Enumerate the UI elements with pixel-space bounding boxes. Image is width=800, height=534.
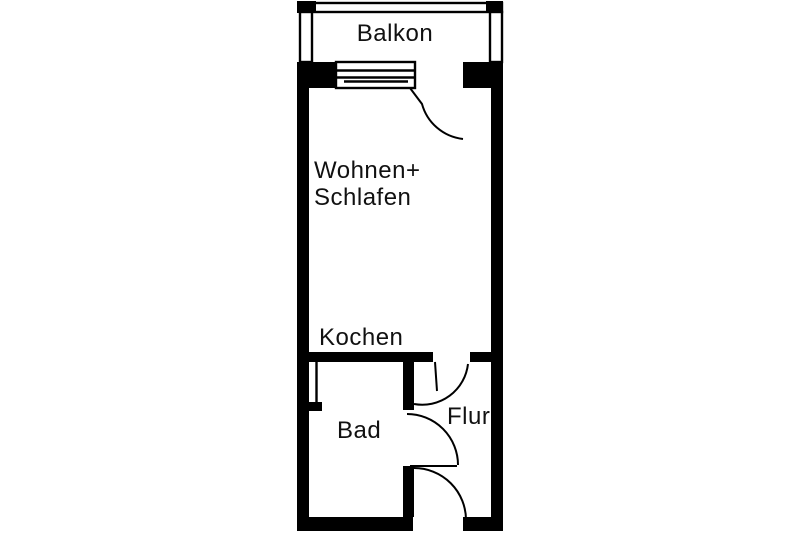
doors xyxy=(407,88,468,520)
window-frame xyxy=(336,62,415,88)
balcony-post-right xyxy=(486,1,503,13)
interior-wall-kitchen xyxy=(309,352,433,362)
balcony-railing-left xyxy=(300,12,312,62)
window xyxy=(336,62,415,88)
balcony-railing-right xyxy=(490,12,502,62)
room-label-balcony: Balkon xyxy=(357,20,433,47)
room-label-living-line1: Wohnen+ xyxy=(314,157,420,184)
room-label-bathroom: Bad xyxy=(337,417,381,444)
room-label-hallway: Flur xyxy=(447,403,490,430)
interior-wall-kitchen-stub xyxy=(470,352,491,362)
top-wall-right-segment xyxy=(463,62,503,88)
bottom-wall-left-segment xyxy=(297,517,413,531)
room-label-kitchen: Kochen xyxy=(319,324,403,351)
bath-wall-lower xyxy=(403,466,414,517)
bath-wall-upper xyxy=(403,362,414,410)
balcony-door-swing xyxy=(410,88,463,139)
floorplan: Balkon Wohnen+ Schlafen Kochen Bad Flur xyxy=(0,0,800,534)
entrance-door-swing xyxy=(414,468,466,520)
balcony-railing-top xyxy=(300,3,502,12)
room-label-living-line2: Schlafen xyxy=(314,184,411,211)
duct-block xyxy=(309,402,322,411)
floorplan-drawing: Balkon Wohnen+ Schlafen Kochen Bad Flur xyxy=(0,0,800,534)
hallway-door-swing xyxy=(414,362,468,405)
bottom-wall-right-segment xyxy=(463,517,503,531)
outer-wall-left xyxy=(297,62,309,531)
balcony-post-left xyxy=(297,1,316,13)
top-wall-left-segment xyxy=(297,62,337,88)
outer-wall-right xyxy=(491,62,503,531)
outer-walls xyxy=(297,62,503,531)
